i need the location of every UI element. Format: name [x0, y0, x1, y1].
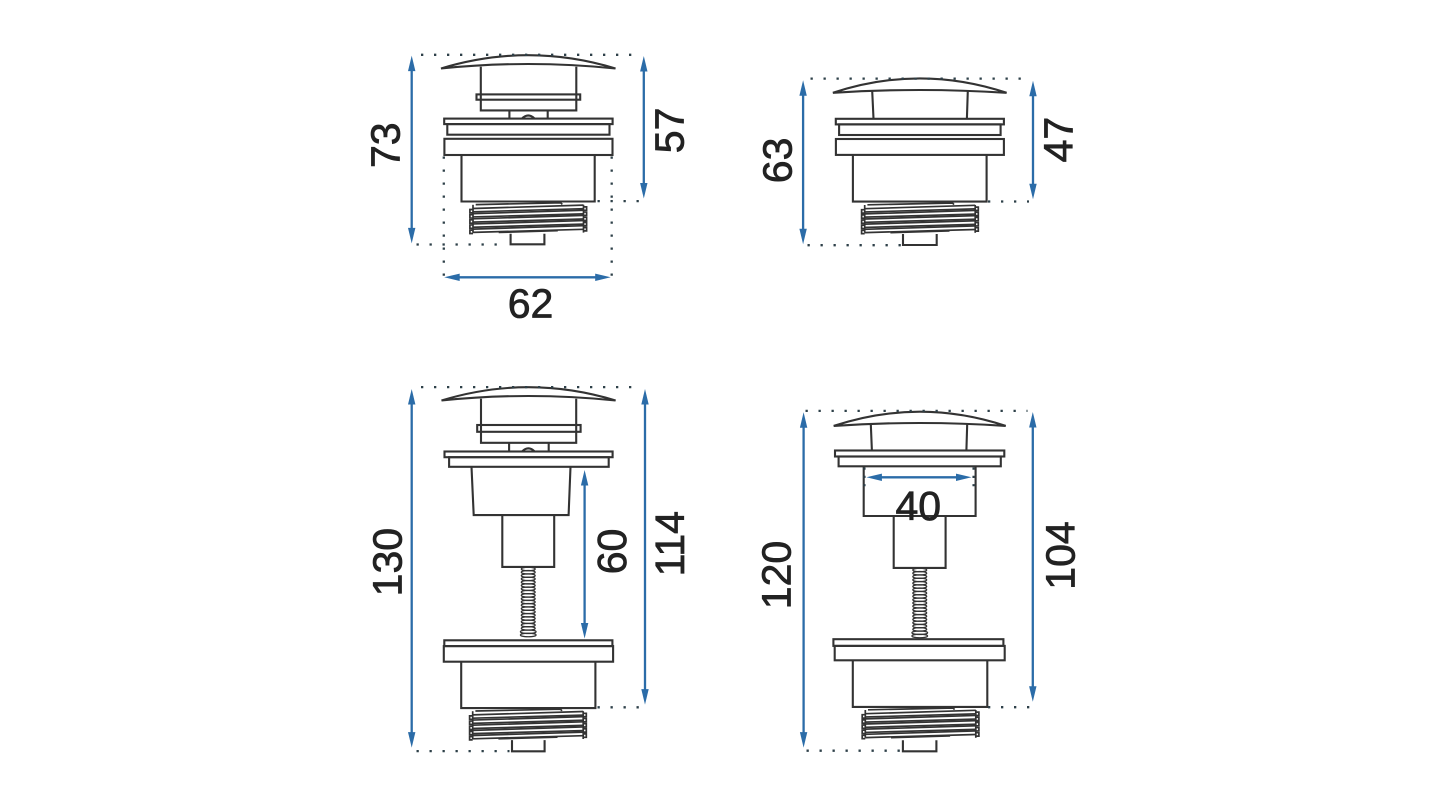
svg-text:120: 120	[754, 541, 800, 609]
svg-text:60: 60	[589, 529, 635, 575]
svg-text:104: 104	[1037, 521, 1083, 589]
svg-text:130: 130	[365, 528, 411, 596]
svg-text:62: 62	[508, 281, 554, 327]
svg-text:57: 57	[647, 108, 693, 154]
svg-text:63: 63	[755, 138, 801, 184]
svg-text:114: 114	[647, 511, 693, 576]
svg-text:73: 73	[363, 122, 409, 168]
svg-text:40: 40	[895, 483, 941, 529]
svg-text:47: 47	[1035, 117, 1081, 163]
